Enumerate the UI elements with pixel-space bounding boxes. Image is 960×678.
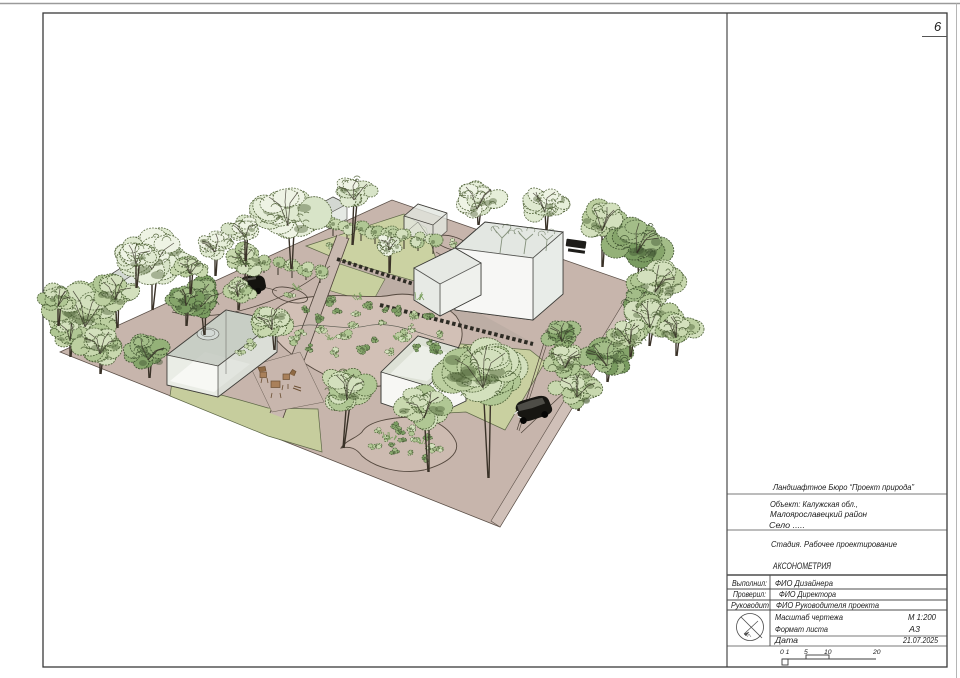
svg-text:10: 10 (824, 649, 832, 656)
svg-text:0 1: 0 1 (780, 649, 790, 656)
svg-text:ФИО Директора: ФИО Директора (779, 590, 836, 599)
svg-text:Руководит: Руководит (731, 601, 769, 610)
svg-text:ФИО Дизайнера: ФИО Дизайнера (775, 579, 833, 588)
svg-text:М 1:200: М 1:200 (908, 613, 936, 622)
svg-text:Объект: Калужская обл.,: Объект: Калужская обл., (770, 500, 858, 509)
svg-text:Выполнил:: Выполнил: (732, 579, 767, 588)
svg-text:АКСОНОМЕТРИЯ: АКСОНОМЕТРИЯ (772, 561, 831, 571)
svg-text:Проверил:: Проверил: (733, 590, 766, 599)
svg-text:6: 6 (934, 19, 942, 34)
svg-text:ФИО Руководителя проекта: ФИО Руководителя проекта (776, 601, 879, 610)
svg-text:20: 20 (872, 649, 881, 656)
svg-text:Село .....: Село ..... (769, 521, 805, 530)
svg-text:А3: А3 (908, 625, 921, 634)
svg-text:5: 5 (804, 649, 808, 656)
svg-text:Ландшафтное Бюро “Проект приро: Ландшафтное Бюро “Проект природа” (772, 483, 915, 492)
svg-text:Дата: Дата (774, 636, 799, 645)
svg-text:Малоярославецкий район: Малоярославецкий район (770, 510, 867, 519)
svg-text:Масштаб чертежа: Масштаб чертежа (775, 613, 843, 622)
svg-text:Стадия. Рабочее проектирование: Стадия. Рабочее проектирование (771, 540, 897, 549)
svg-text:21.07.2025: 21.07.2025 (902, 636, 938, 645)
svg-text:Формат листа: Формат листа (775, 625, 828, 634)
